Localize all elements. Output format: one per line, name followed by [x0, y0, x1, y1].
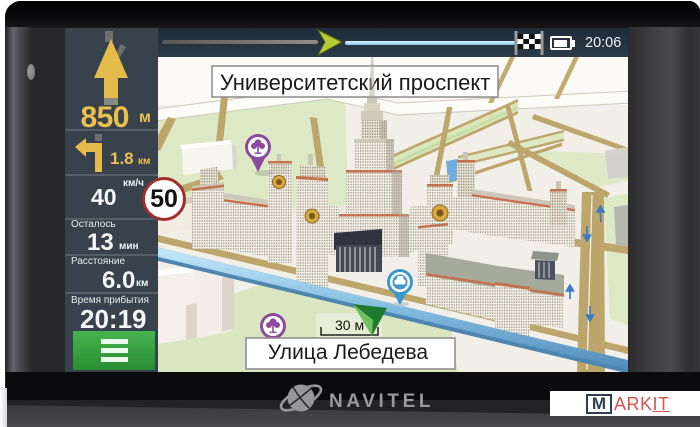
svg-text:Улица Лебедева: Улица Лебедева — [268, 341, 429, 364]
svg-text:NAVITEL: NAVITEL — [329, 391, 434, 412]
svg-text:Университетский проспект: Университетский проспект — [220, 70, 491, 95]
svg-text:30 м: 30 м — [335, 317, 364, 333]
